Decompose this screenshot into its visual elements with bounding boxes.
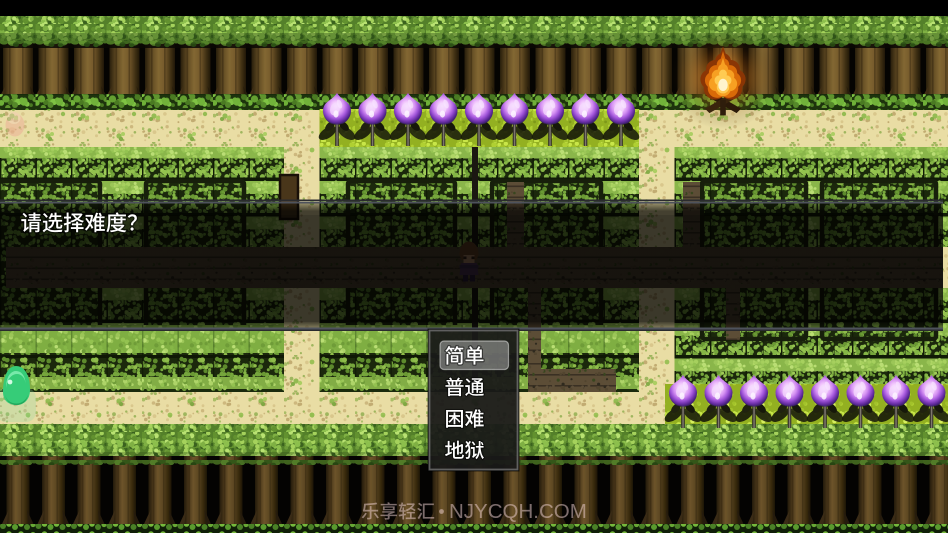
svg-text:NJYCQH.COM: NJYCQH.COM	[449, 500, 587, 523]
